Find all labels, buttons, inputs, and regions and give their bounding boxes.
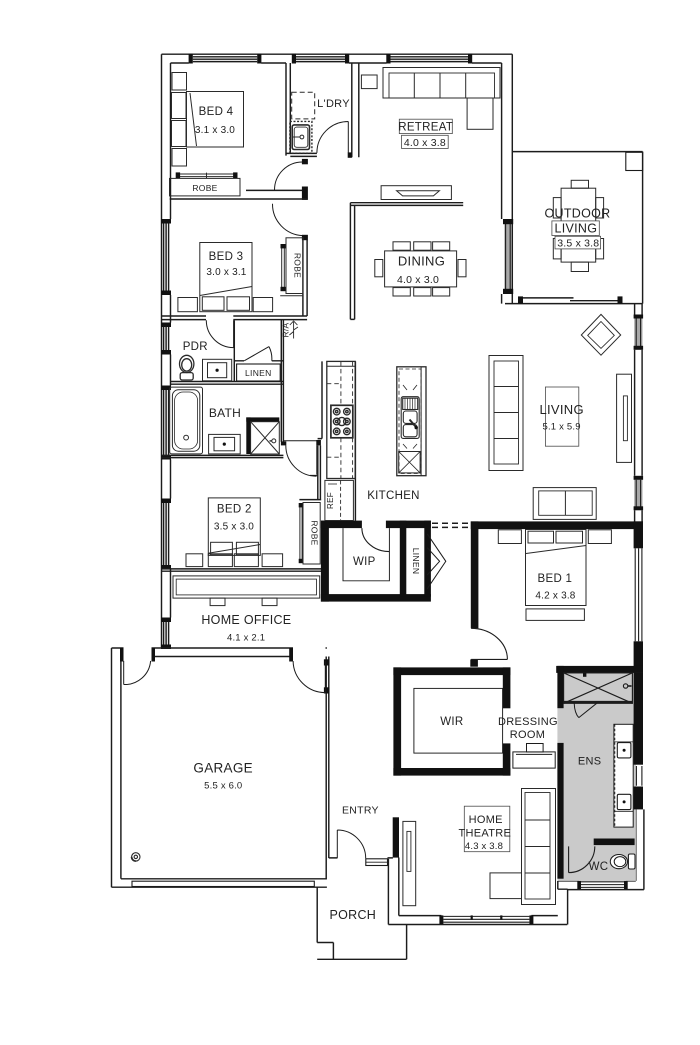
svg-text:WC: WC: [589, 861, 609, 873]
svg-text:BED 1: BED 1: [538, 573, 573, 585]
svg-text:PORCH: PORCH: [329, 908, 376, 922]
svg-text:HOME OFFICE: HOME OFFICE: [201, 613, 291, 627]
svg-text:4.2 x 3.8: 4.2 x 3.8: [535, 591, 575, 602]
svg-text:L'DRY: L'DRY: [317, 98, 350, 110]
svg-text:ROOM: ROOM: [510, 729, 545, 741]
svg-text:GARAGE: GARAGE: [193, 761, 253, 776]
svg-text:ROBE: ROBE: [293, 253, 303, 278]
svg-text:KITCHEN: KITCHEN: [367, 490, 420, 502]
svg-text:ROBE: ROBE: [192, 183, 217, 193]
svg-text:3.1 x 3.0: 3.1 x 3.0: [195, 125, 235, 136]
svg-text:DINING: DINING: [398, 254, 445, 269]
svg-text:WIP: WIP: [353, 556, 376, 568]
svg-text:LINEN: LINEN: [245, 368, 272, 378]
svg-text:ENTRY: ENTRY: [342, 805, 379, 817]
svg-text:4.1 x 2.1: 4.1 x 2.1: [227, 633, 265, 644]
svg-text:PDR: PDR: [183, 341, 208, 353]
svg-text:LINEN: LINEN: [411, 548, 421, 575]
svg-text:BED 2: BED 2: [217, 504, 252, 516]
svg-text:THEATRE: THEATRE: [458, 828, 511, 840]
svg-text:HOME: HOME: [469, 814, 503, 826]
svg-text:4.3 x 3.8: 4.3 x 3.8: [465, 841, 503, 852]
svg-text:5.5 x 6.0: 5.5 x 6.0: [204, 781, 242, 792]
svg-text:ROBE: ROBE: [310, 520, 320, 545]
svg-text:WIR: WIR: [440, 716, 463, 728]
svg-text:R/A: R/A: [281, 322, 291, 337]
svg-text:4.0 x 3.0: 4.0 x 3.0: [397, 274, 439, 286]
svg-text:ENS: ENS: [578, 756, 602, 768]
svg-text:3.0 x 3.1: 3.0 x 3.1: [206, 267, 246, 278]
svg-text:BED 4: BED 4: [199, 106, 234, 118]
svg-text:LIVING: LIVING: [555, 222, 598, 236]
svg-text:3.5 x 3.0: 3.5 x 3.0: [214, 522, 254, 533]
svg-text:BED 3: BED 3: [209, 251, 244, 263]
svg-text:REF: REF: [326, 492, 335, 509]
svg-text:RETREAT: RETREAT: [398, 122, 453, 134]
svg-text:4.0 x 3.8: 4.0 x 3.8: [404, 137, 446, 149]
svg-text:5.1 x 5.9: 5.1 x 5.9: [542, 422, 580, 433]
svg-text:3.5 x 3.8: 3.5 x 3.8: [557, 237, 599, 249]
svg-text:LIVING: LIVING: [539, 402, 583, 417]
svg-text:BATH: BATH: [209, 406, 241, 420]
svg-text:DRESSING: DRESSING: [498, 716, 558, 728]
svg-text:OUTDOOR: OUTDOOR: [545, 207, 611, 221]
